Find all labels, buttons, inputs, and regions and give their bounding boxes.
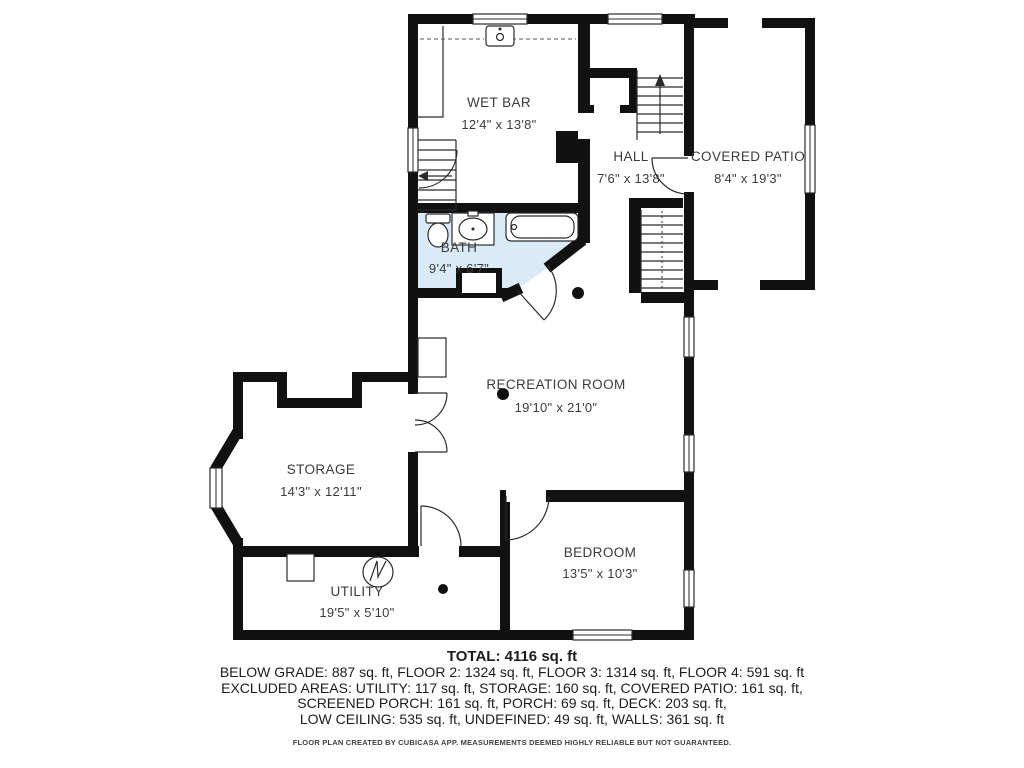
- utility-tank: [287, 554, 314, 581]
- floor-plan-page: WET BAR 12'4" x 13'8" HALL 7'6" x 13'8" …: [0, 0, 1024, 768]
- patio-label: COVERED PATIO: [691, 149, 805, 164]
- stairs-down-hall: [641, 210, 683, 292]
- hall-top-window: [608, 14, 662, 24]
- room-labels: WET BAR 12'4" x 13'8" HALL 7'6" x 13'8" …: [280, 95, 805, 620]
- stairs-up-arrow: [655, 74, 665, 86]
- recroom-dims: 19'10" x 21'0": [515, 400, 598, 415]
- support-post: [572, 287, 584, 299]
- recroom-window-lower: [684, 435, 694, 472]
- bedroom-label: BEDROOM: [564, 545, 637, 560]
- floors-area: BELOW GRADE: 887 sq. ft, FLOOR 2: 1324 s…: [0, 665, 1024, 681]
- stairs-wetbar: [418, 140, 457, 210]
- recroom-window-upper: [684, 317, 694, 357]
- total-area: TOTAL: 4116 sq. ft: [0, 648, 1024, 665]
- hall-label: HALL: [613, 149, 648, 164]
- storage-dims: 14'3" x 12'11": [280, 484, 362, 499]
- disclaimer: FLOOR PLAN CREATED BY CUBICASA APP. MEAS…: [0, 738, 1024, 747]
- hall-dims: 7'6" x 13'8": [597, 171, 665, 186]
- bath-dims: 9'4" x 6'7": [429, 261, 489, 276]
- storage-double-door: [415, 393, 447, 452]
- wetbar-top-window: [473, 14, 527, 24]
- excluded-area-1: EXCLUDED AREAS: UTILITY: 117 sq. ft, STO…: [0, 681, 1024, 697]
- wetbar-dims: 12'4" x 13'8": [461, 117, 536, 132]
- bath-label: BATH: [441, 240, 478, 255]
- water-heater-icon: [363, 557, 393, 587]
- patio-right-window: [805, 125, 815, 193]
- stairs-up-hall: [637, 70, 683, 140]
- patio-dims: 8'4" x 19'3": [714, 171, 782, 186]
- support-post: [438, 584, 448, 594]
- bathtub-icon: [506, 213, 578, 241]
- bedroom-door: [505, 496, 549, 540]
- excluded-area-3: LOW CEILING: 535 sq. ft, UNDEFINED: 49 s…: [0, 712, 1024, 728]
- wetbar-sink-icon: [486, 26, 514, 46]
- utility-label: UTILITY: [330, 584, 383, 599]
- storage-bay-window: [210, 468, 222, 508]
- recroom-door-leaf-cabinet: [418, 338, 446, 377]
- wetbar-label: WET BAR: [467, 95, 531, 110]
- storage-label: STORAGE: [287, 462, 356, 477]
- recroom-label: RECREATION ROOM: [486, 377, 625, 392]
- bedroom-right-window: [684, 570, 694, 607]
- excluded-area-2: SCREENED PORCH: 161 sq. ft, PORCH: 69 sq…: [0, 696, 1024, 712]
- wetbar-left-window: [408, 128, 418, 172]
- area-summary: TOTAL: 4116 sq. ft BELOW GRADE: 887 sq. …: [0, 648, 1024, 747]
- bedroom-dims: 13'5" x 10'3": [562, 566, 637, 581]
- utility-door: [421, 506, 461, 546]
- utility-dims: 19'5" x 5'10": [319, 605, 394, 620]
- bedroom-bottom-window: [573, 630, 632, 640]
- floor-plan-svg: WET BAR 12'4" x 13'8" HALL 7'6" x 13'8" …: [0, 0, 1024, 648]
